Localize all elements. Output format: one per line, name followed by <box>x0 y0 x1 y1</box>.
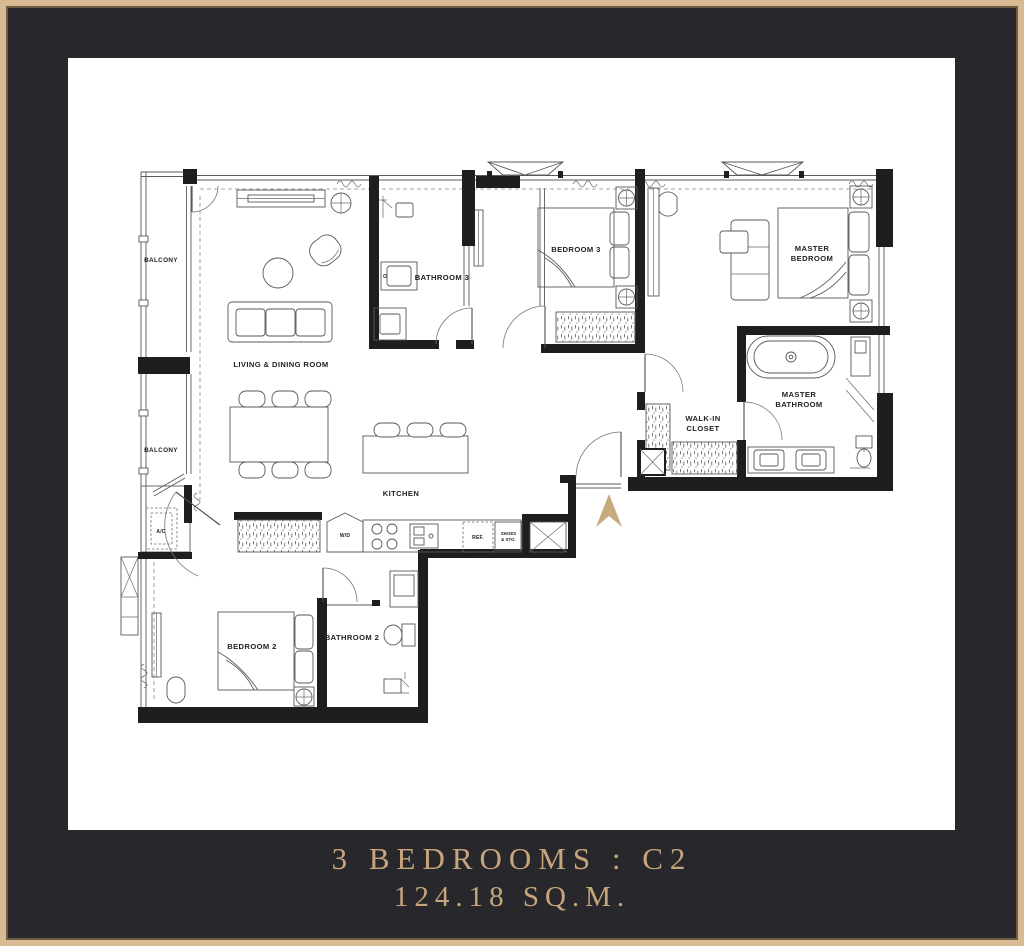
bathroom2-fixtures <box>384 571 418 693</box>
label-balcony-1: BALCONY <box>144 257 178 264</box>
label-walk-in-closet-2: CLOSET <box>686 424 719 433</box>
bathroom3-fixtures <box>374 196 417 340</box>
label-living-dining: LIVING & DINING ROOM <box>233 360 328 369</box>
label-master-bathroom-2: BATHROOM <box>775 400 822 409</box>
entry-direction-arrow-icon <box>596 494 622 527</box>
label-ref: REF. <box>472 535 484 541</box>
label-kitchen: KITCHEN <box>383 489 420 498</box>
label-master-bathroom-1: MASTER <box>782 390 817 399</box>
caption: 3 BEDROOMS : C2 124.18 SQ.M. <box>0 840 1024 916</box>
master-bedroom-furniture <box>648 186 872 322</box>
label-bedroom-3: BEDROOM 3 <box>551 245 601 254</box>
bedroom2-furniture <box>152 612 314 706</box>
unit-area-subtitle: 124.18 SQ.M. <box>0 878 1024 916</box>
window-walls <box>121 172 884 710</box>
structural-walls <box>138 169 893 723</box>
bedroom3-furniture <box>538 187 637 342</box>
floor-plan-panel: BALCONY BALCONY LIVING & DINING ROOM KIT… <box>68 58 955 830</box>
label-shoes-1: SHOES <box>501 531 517 536</box>
living-room-furniture <box>228 190 468 478</box>
curtain-dashed-lines <box>154 189 872 700</box>
label-ac: A/C <box>156 529 165 535</box>
label-master-bedroom-1: MASTER <box>795 244 830 253</box>
label-wd: W/D <box>340 533 351 539</box>
label-bathroom-3: BATHROOM 3 <box>415 273 469 282</box>
label-balcony-2: BALCONY <box>144 447 178 454</box>
unit-type-title: 3 BEDROOMS : C2 <box>0 840 1024 878</box>
label-bathroom-2: BATHROOM 2 <box>325 633 379 642</box>
label-walk-in-closet-1: WALK-IN <box>685 414 720 423</box>
floor-plan-drawing: BALCONY BALCONY LIVING & DINING ROOM KIT… <box>68 58 955 830</box>
label-master-bedroom-2: BEDROOM <box>791 254 833 263</box>
label-shoes-2: & STO. <box>501 537 516 542</box>
label-bedroom-2: BEDROOM 2 <box>227 642 277 651</box>
